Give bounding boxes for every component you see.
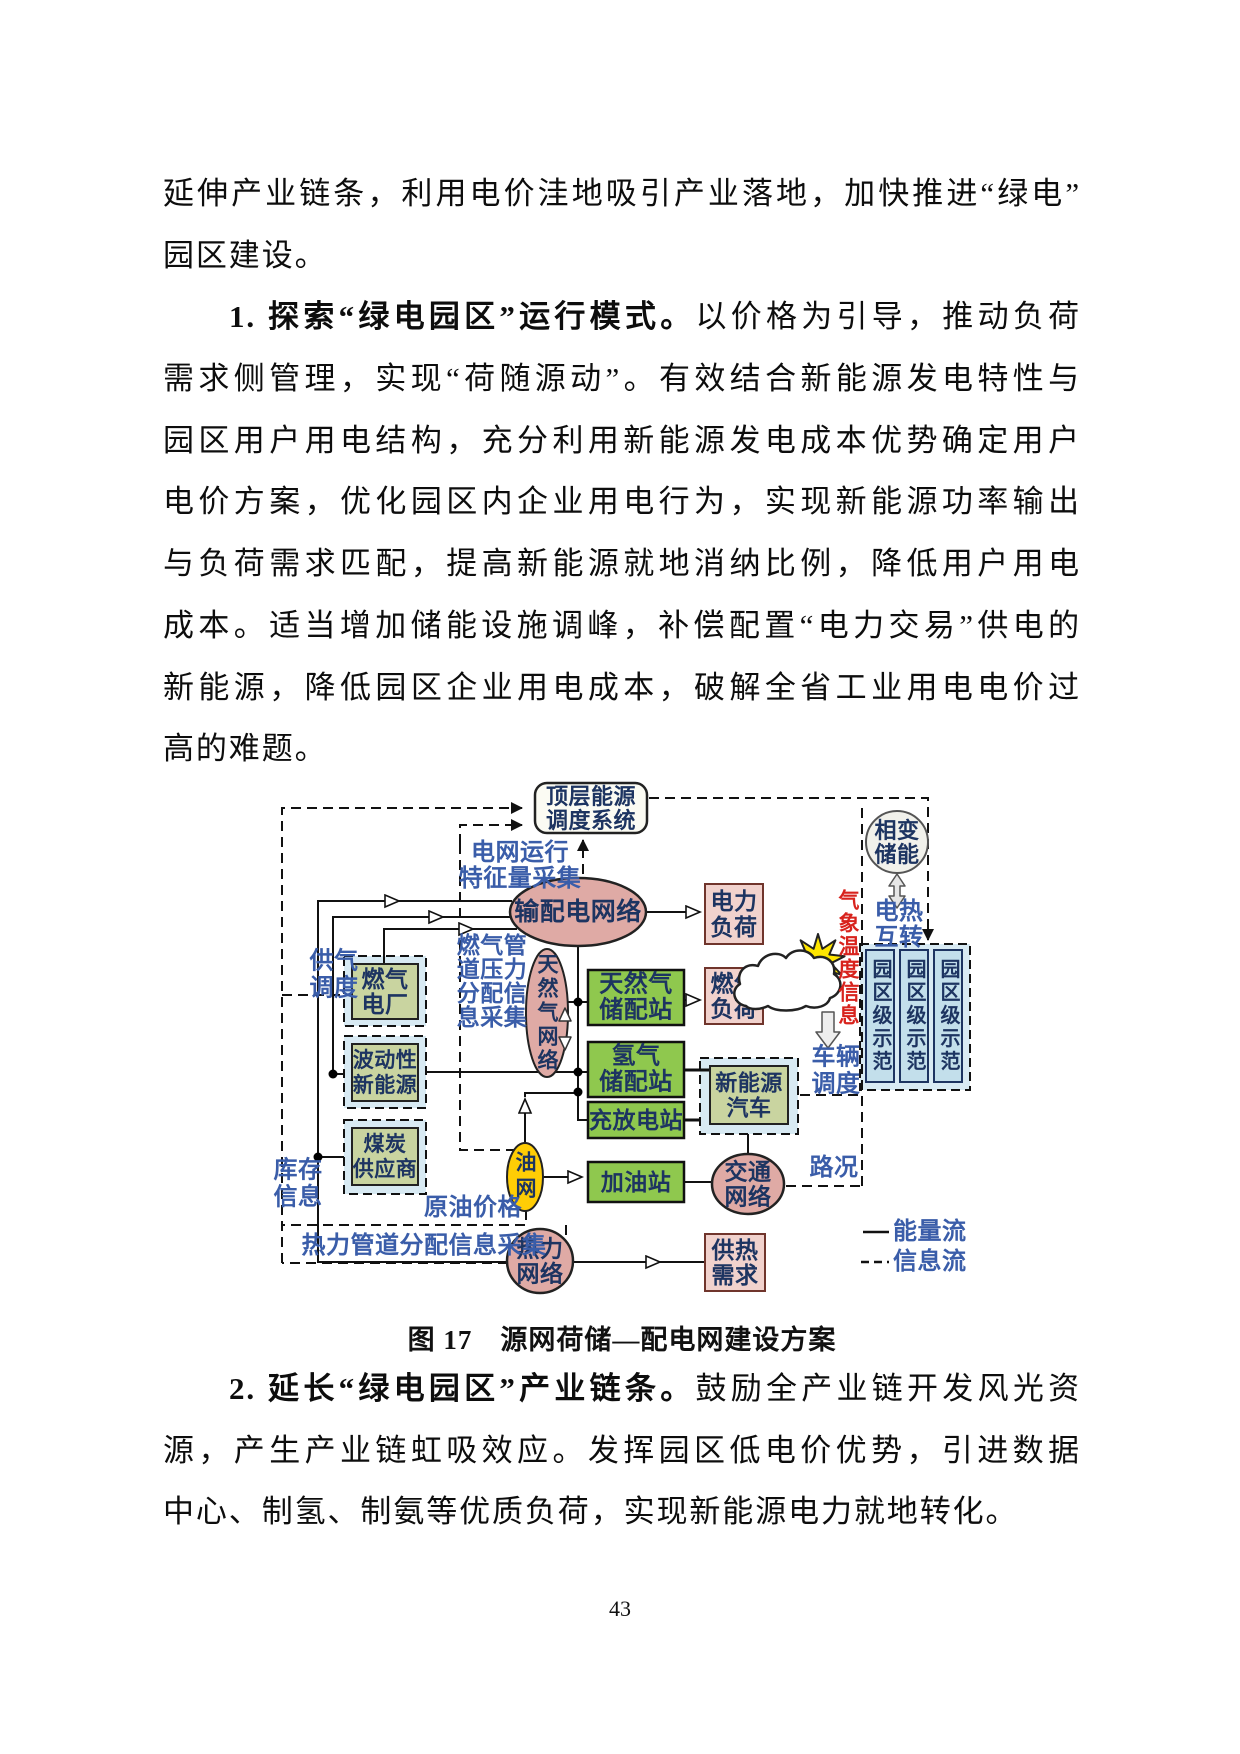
fluctuating-renewables-label: 波动性新能源: [353, 1048, 418, 1097]
gas-power-plant-label: 燃气电厂: [362, 966, 409, 1017]
junction-dot: [329, 1070, 338, 1079]
charge-station-label: 充放电站: [589, 1107, 683, 1133]
label-gas-supply-dispatch: 供气调度: [309, 947, 359, 1002]
label-grid-feature-collection: 电网运行特征量采集: [459, 838, 582, 892]
paragraphs-bottom: 2. 延长“绿电园区”产业链条。鼓励全产业链开发风光资源，产生产业链虹吸效应。发…: [163, 1358, 1081, 1543]
legend-info-flow-label: 信息流: [893, 1247, 967, 1275]
page-number: 43: [0, 1596, 1240, 1622]
junction-dot: [574, 1088, 583, 1097]
text-run: 鼓励全产业链开发风光资: [695, 1371, 1081, 1406]
label-road-condition: 路况: [810, 1153, 859, 1181]
park-demo-2-label: 园区级示范: [903, 959, 926, 1074]
text-line: 源，产生产业链虹吸效应。发挥园区低电价优势，引进数据: [163, 1420, 1081, 1482]
naturalgas-station-label: 天然气储配站: [599, 970, 673, 1024]
text-run: 中心、制氢、制氨等优质负荷，实现新能源电力就地转化。: [163, 1494, 1018, 1529]
label-gas-pipeline-info: 燃气管道压力分配信息采集: [457, 932, 528, 1030]
label-vehicle-dispatch: 车辆调度: [812, 1043, 861, 1098]
label-heat-pipeline-info: 热力管道分配信息采集: [302, 1231, 547, 1259]
figure-caption: 图 17 源网荷储—配电网建设方案: [163, 1318, 1081, 1357]
label-electric-heat-convert: 电热互转: [875, 898, 924, 951]
power-load-label: 电力负荷: [711, 889, 758, 940]
label-weather-temperature-info: 气象温度信息: [836, 888, 861, 1027]
park-demo-3-label: 园区级示范: [937, 959, 960, 1074]
edge-energy-coal-riser: [318, 901, 398, 1157]
text-run-bold: 2. 延长“绿电园区”产业链条。: [229, 1371, 695, 1406]
text-line: 中心、制氢、制氨等优质负荷，实现新能源电力就地转化。: [163, 1481, 1081, 1543]
park-demo-1-label: 园区级示范: [869, 959, 892, 1074]
text-run: 源，产生产业链虹吸效应。发挥园区低电价优势，引进数据: [163, 1433, 1081, 1468]
document-page: 延伸产业链条，利用电价洼地吸引产业落地，加快推进“绿电”园区建设。1. 探索“绿…: [0, 0, 1240, 1754]
edge-energy-oil-up-2: [525, 1093, 576, 1097]
naturalgas-network-label: 天然气网络: [535, 953, 560, 1073]
heat-demand-label: 供热需求: [711, 1237, 759, 1288]
traffic-network-label: 交通网络: [725, 1158, 772, 1209]
grid-network-label: 输配电网络: [514, 897, 642, 926]
label-inventory-info: 库存信息: [274, 1157, 323, 1211]
junction-dot: [574, 998, 583, 1007]
phase-change-storage-label: 相变储能: [874, 818, 919, 867]
top-dispatch-system-label: 顶层能源调度系统: [546, 784, 636, 833]
legend-energy-flow-label: 能量流: [893, 1217, 967, 1245]
fuel-station-label: 加油站: [600, 1170, 672, 1195]
cloud-icon: [734, 951, 840, 1011]
junction-dot: [574, 1068, 583, 1077]
text-line: 2. 延长“绿电园区”产业链条。鼓励全产业链开发风光资: [163, 1358, 1081, 1420]
label-crude-oil-price: 原油价格: [424, 1194, 522, 1221]
